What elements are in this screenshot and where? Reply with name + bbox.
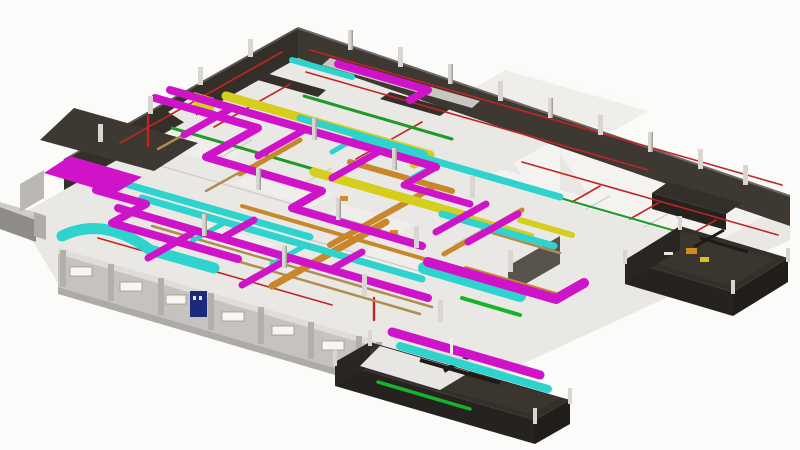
cluster-equipment-white [664,252,673,255]
model-viewport[interactable] [0,0,800,450]
entry-door [190,291,207,317]
bim-isometric-view [0,0,800,450]
cluster-equipment-yellow [700,257,709,262]
cluster-equipment-orange [686,248,697,254]
